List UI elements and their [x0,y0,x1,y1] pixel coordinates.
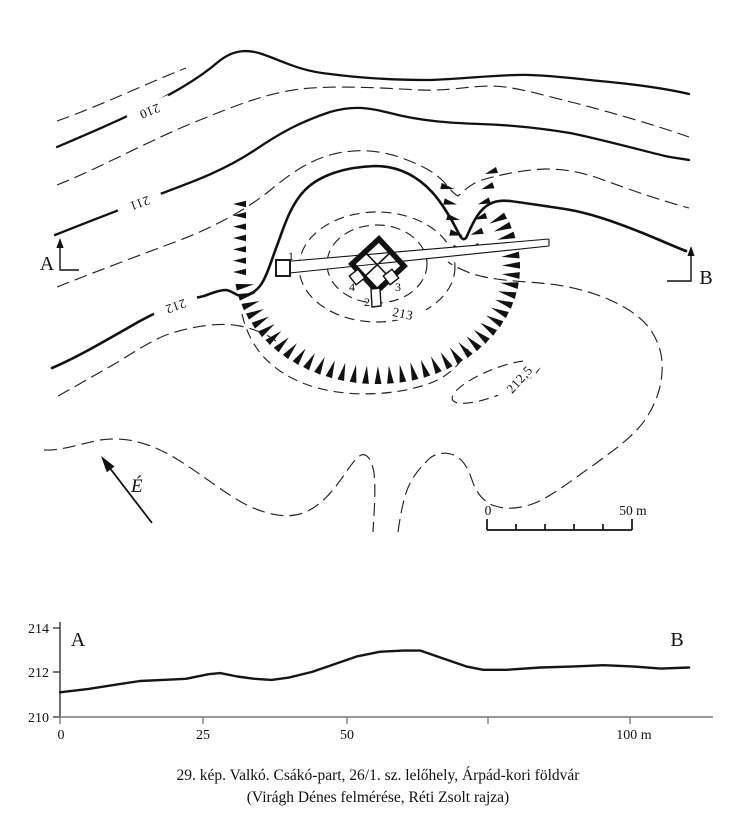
trench-label-3: 3 [395,280,401,294]
contour-dashed-valley-east-loop [398,262,662,532]
hachure-mark [498,291,516,299]
profile-ytick-210: 210 [28,711,49,726]
profile-ytick-214: 214 [28,622,49,637]
hachure-mark [338,363,346,381]
hachure-mark [274,337,289,352]
profile-y-ticks [53,628,60,717]
scale-bar [487,519,632,530]
figure-page: 210 211 212 213 212,5 [0,0,756,827]
fort-enclosure [349,239,404,307]
hachure-mark [283,343,297,359]
profile-x-ticks [60,717,630,724]
hachure-mark [481,182,494,189]
hachure-mark [236,284,254,291]
hachure-mark [326,360,335,378]
profile-ytick-212: 212 [28,666,49,681]
profile-xtick-25: 25 [196,728,210,743]
figure-caption: 29. kép. Valkó. Csákó-part, 26/1. sz. le… [177,767,581,806]
contour-label-211-group: 211 [115,188,164,221]
hachure-mark [474,330,490,344]
profile-xtick-100: 100 m [616,728,652,743]
north-arrow-label: É [130,475,143,497]
hachure-mark [233,201,246,207]
hachure-mark [466,336,481,351]
hachure-mark [410,362,418,380]
hachure-mark [303,353,315,370]
contour-dashed-211-5 [57,151,689,287]
hachure-mark [443,198,457,204]
hachure-mark [471,228,484,235]
hachure-mark [314,357,325,375]
section-marker-b-arrow-icon [687,246,694,256]
hachure-mark [233,246,246,252]
cross-section-profile: 214 212 210 0 25 50 100 m A B [28,622,713,743]
hachure-mark [258,324,275,337]
hachure-mark [293,348,306,365]
scale-bar-start-label: 0 [485,503,492,518]
trench-2-rect [371,288,381,307]
north-arrow-icon [101,456,115,472]
hachure-mark [489,213,507,224]
hachure-mark [441,352,453,369]
hachure-mark [375,366,382,384]
contour-label-213-group: 213 [380,301,426,326]
figure-canvas: 210 211 212 213 212,5 [0,0,756,827]
hachure-mark [233,257,246,263]
contour-line-210 [57,51,689,147]
hachure-mark [233,235,246,241]
hachure-mark [500,282,518,289]
hachure-mark [497,232,515,240]
hachure-mark [421,360,430,378]
hachure-mark [246,309,264,320]
section-marker-b-bracket [667,256,691,281]
contour-label-210-group: 210 [125,95,174,129]
hachure-mark [450,348,463,365]
hachure-mark [242,301,260,310]
hachure-mark [238,293,256,301]
profile-xtick-0: 0 [58,728,65,743]
contour-label-212-group: 212 [151,291,200,324]
contour-dashed-210-5 [57,86,689,185]
profile-marker-b: B [670,629,683,651]
contour-dashed-below-212 [58,324,276,396]
trench-label-4: 4 [349,280,355,294]
hachure-mark [501,252,519,259]
hachure-mark [495,300,513,309]
hachure-mark [362,366,369,384]
hachure-mark [494,222,512,232]
hachure-mark [252,317,269,329]
profile-xtick-50: 50 [340,728,354,743]
caption-line-1: 29. kép. Valkó. Csákó-part, 26/1. sz. le… [177,767,581,784]
hachure-mark [233,212,246,218]
contour-dashed-valley-west [44,439,375,532]
topographic-map: 210 211 212 213 212,5 [40,51,713,532]
hachure-mark [350,365,357,383]
hachure-mark [233,269,246,275]
caption-line-2: (Virágh Dénes felmérése, Réti Zsolt rajz… [247,789,509,806]
hachure-mark [431,356,442,374]
hachure-mark [387,366,394,384]
hachure-mark [502,272,520,279]
profile-terrain-curve [60,651,689,693]
section-marker-a-arrow-icon [56,238,63,248]
trench-label-1: 1 [288,249,294,263]
profile-marker-a: A [71,629,86,651]
trench-label-2: 2 [364,295,370,309]
hachure-mark [502,262,520,269]
section-marker-b-label: B [699,267,712,289]
section-marker-b: B [667,246,713,289]
hachure-mark [440,183,454,189]
section-marker-a-label: A [40,253,55,275]
hachure-mark [233,223,246,229]
hachure-mark [458,342,472,358]
hachure-mark [266,331,282,345]
hachure-mark [400,364,407,382]
excavation-trench [276,239,549,276]
section-marker-a: A [40,238,79,275]
north-arrow: É [101,456,152,523]
hachure-mark [480,323,497,336]
scale-bar-end-label: 50 m [619,503,647,518]
hachure-mark [486,315,503,327]
hachure-mark [491,308,509,318]
hachure-mark [478,197,491,204]
hachure-mark [446,214,460,220]
hachure-mark [485,167,498,174]
